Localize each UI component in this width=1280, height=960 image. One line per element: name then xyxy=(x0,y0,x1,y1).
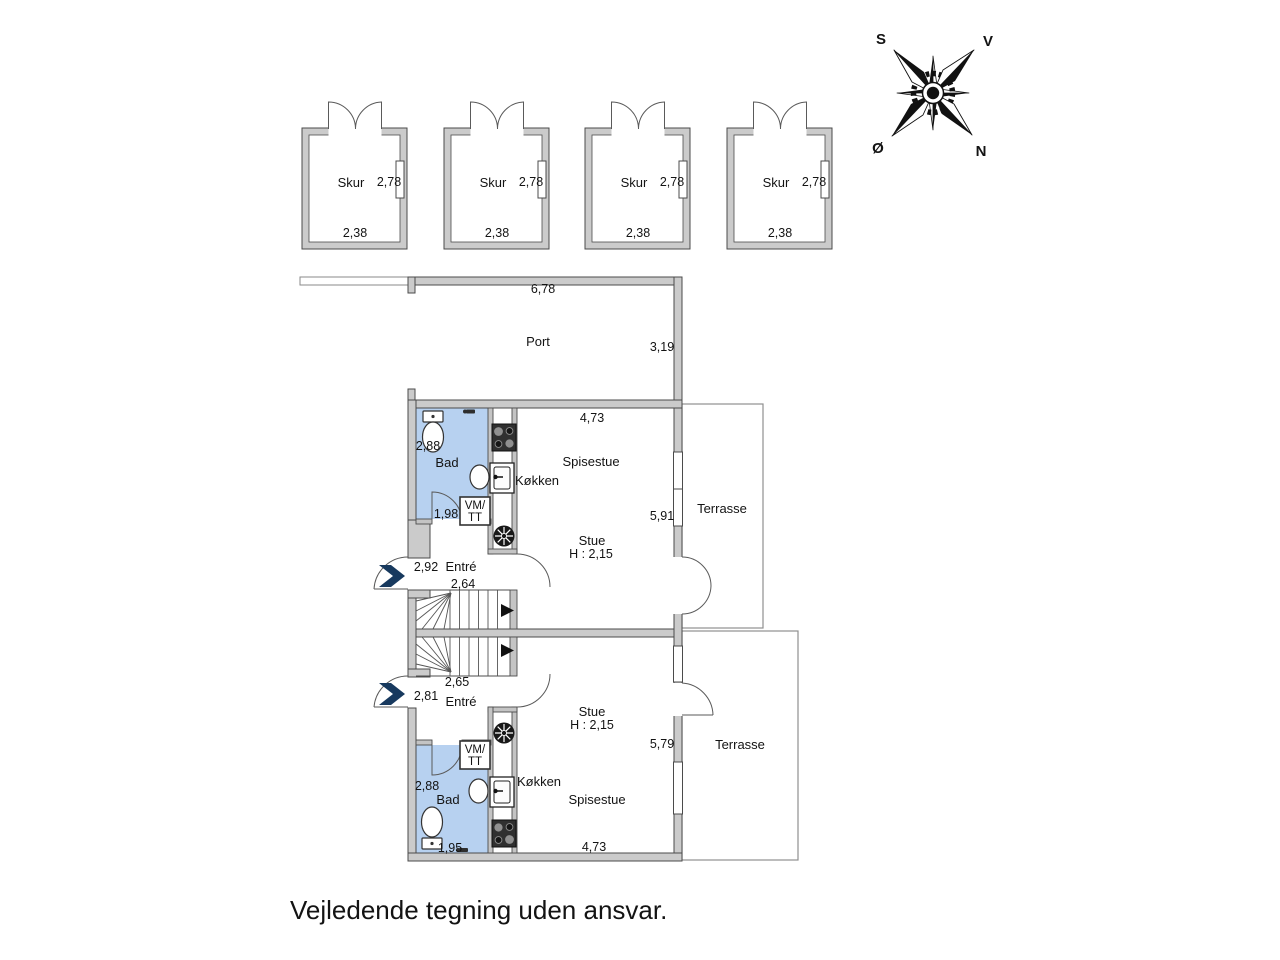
shed-depth-dim: 2,78 xyxy=(802,175,826,189)
unit-divider-wall xyxy=(416,629,674,637)
kitchen-sink-icon-lower xyxy=(490,777,514,807)
disclaimer-text: Vejledende tegning uden ansvar. xyxy=(290,895,667,925)
port-left-stub xyxy=(408,277,415,293)
compass-east-label: Ø xyxy=(872,140,884,157)
bath-label: Bad xyxy=(435,455,458,470)
window-icon xyxy=(674,762,683,814)
shed-4: Skur 2,78 2,38 xyxy=(727,102,832,249)
boundary-stub-wall xyxy=(300,277,408,285)
shed-door-left-icon xyxy=(471,102,498,129)
stair-width-dim: 2,65 xyxy=(445,675,469,689)
living-depth-dim: 5,79 xyxy=(650,737,674,751)
living-door-upper-icon xyxy=(517,554,550,587)
living-label: Stue xyxy=(579,704,606,719)
compass-north-label: N xyxy=(976,143,987,160)
terrace-label: Terrasse xyxy=(715,737,765,752)
shed-2: Skur 2,78 2,38 xyxy=(444,102,549,249)
terrace-upper xyxy=(682,404,763,628)
washbasin-icon-lower xyxy=(469,779,488,803)
kitchen-label: Køkken xyxy=(515,473,559,488)
utility-label-line1: VM/ xyxy=(465,500,486,512)
dining-width-dim: 4,73 xyxy=(580,411,604,425)
stair-right-wall-lower xyxy=(510,637,517,676)
ceiling-height-label: H : 2,15 xyxy=(569,547,613,561)
port-width-dim: 6,78 xyxy=(531,282,555,296)
bath-width-dim: 2,88 xyxy=(416,439,440,453)
floorplan-page: { "disclaimer": "Vejledende tegning uden… xyxy=(0,0,1280,960)
port-depth-dim: 3,19 xyxy=(650,340,674,354)
shed-door-left-icon xyxy=(612,102,639,129)
shed-depth-dim: 2,78 xyxy=(660,175,684,189)
dining-width-dim: 4,73 xyxy=(582,840,606,854)
shed-label: Skur xyxy=(338,175,365,190)
shed-door-right-icon xyxy=(781,102,807,129)
shed-door-right-icon xyxy=(639,102,665,129)
bath-label: Bad xyxy=(436,792,459,807)
stair-corner-wall xyxy=(408,590,430,598)
living-depth-dim: 5,91 xyxy=(650,509,674,523)
shed-width-dim: 2,38 xyxy=(626,226,650,240)
kitchen-label: Køkken xyxy=(517,774,561,789)
bath-width-dim: 2,88 xyxy=(415,779,439,793)
utility-label-line2: TT xyxy=(468,756,482,768)
window-icon xyxy=(674,646,683,682)
main-plan: VM/ TT VM/ TT xyxy=(300,277,798,861)
kitchen-sink-icon-upper xyxy=(490,463,514,493)
shed-door-left-icon xyxy=(754,102,781,129)
shed-1: Skur 2,78 2,38 xyxy=(302,102,407,249)
bath-door-dim: 1,98 xyxy=(434,507,458,521)
floorplan-drawing: Skur 2,78 2,38 Skur 2,78 2,38 Skur 2,78 … xyxy=(0,0,1280,960)
stove-icon-lower xyxy=(492,820,516,847)
faucet-icon-upper xyxy=(463,410,475,414)
extractor-fan-icon-upper xyxy=(494,526,515,547)
extractor-fan-icon-lower xyxy=(494,723,515,744)
kitchen-cap-upper xyxy=(488,549,517,554)
washbasin-icon-upper xyxy=(470,465,489,489)
terrace-door-opening-lower xyxy=(673,683,683,716)
shed-label: Skur xyxy=(480,175,507,190)
utility-label-line1: VM/ xyxy=(465,744,486,756)
stove-icon-upper xyxy=(492,424,516,451)
shed-door-right-icon xyxy=(356,102,382,129)
dining-label: Spisestue xyxy=(562,454,619,469)
utility-box-upper: VM/ TT xyxy=(460,497,490,525)
left-wall xyxy=(408,590,416,677)
shed-door-right-icon xyxy=(498,102,524,129)
shed-width-dim: 2,38 xyxy=(343,226,367,240)
bath-door-dim: 1,95 xyxy=(438,841,462,855)
entry-width-dim: 2,92 xyxy=(414,560,438,574)
living-door-lower-icon xyxy=(517,674,550,707)
compass-west-label: V xyxy=(983,33,993,50)
entry-width-dim: 2,81 xyxy=(414,689,438,703)
shed-width-dim: 2,38 xyxy=(768,226,792,240)
stair-width-dim: 2,64 xyxy=(451,577,475,591)
terrace-door-opening-upper xyxy=(673,557,683,614)
dining-label: Spisestue xyxy=(568,792,625,807)
compass-rose-icon: S V Ø N xyxy=(872,31,993,160)
shed-label: Skur xyxy=(763,175,790,190)
shed-depth-dim: 2,78 xyxy=(519,175,543,189)
utility-label-line2: TT xyxy=(468,512,482,524)
port-labels: 6,78 Port 3,19 xyxy=(526,282,674,354)
living-label: Stue xyxy=(579,533,606,548)
duct-block xyxy=(408,520,430,558)
bath-bottom-wall-upper xyxy=(416,519,432,524)
port-left-stub xyxy=(408,389,415,400)
entry-label: Entré xyxy=(445,559,476,574)
shed-label: Skur xyxy=(621,175,648,190)
entry-label: Entré xyxy=(445,694,476,709)
shed-3: Skur 2,78 2,38 xyxy=(585,102,690,249)
utility-box-lower: VM/ TT xyxy=(460,741,490,769)
terrace-label: Terrasse xyxy=(697,501,747,516)
shed-door-left-icon xyxy=(329,102,356,129)
shed-width-dim: 2,38 xyxy=(485,226,509,240)
ceiling-height-label: H : 2,15 xyxy=(570,718,614,732)
shed-depth-dim: 2,78 xyxy=(377,175,401,189)
compass-south-label: S xyxy=(876,31,886,48)
compass-center-dot xyxy=(927,87,939,99)
bath-top-wall-lower xyxy=(416,740,432,745)
port-label: Port xyxy=(526,334,550,349)
apartment-top-wall xyxy=(408,400,682,408)
